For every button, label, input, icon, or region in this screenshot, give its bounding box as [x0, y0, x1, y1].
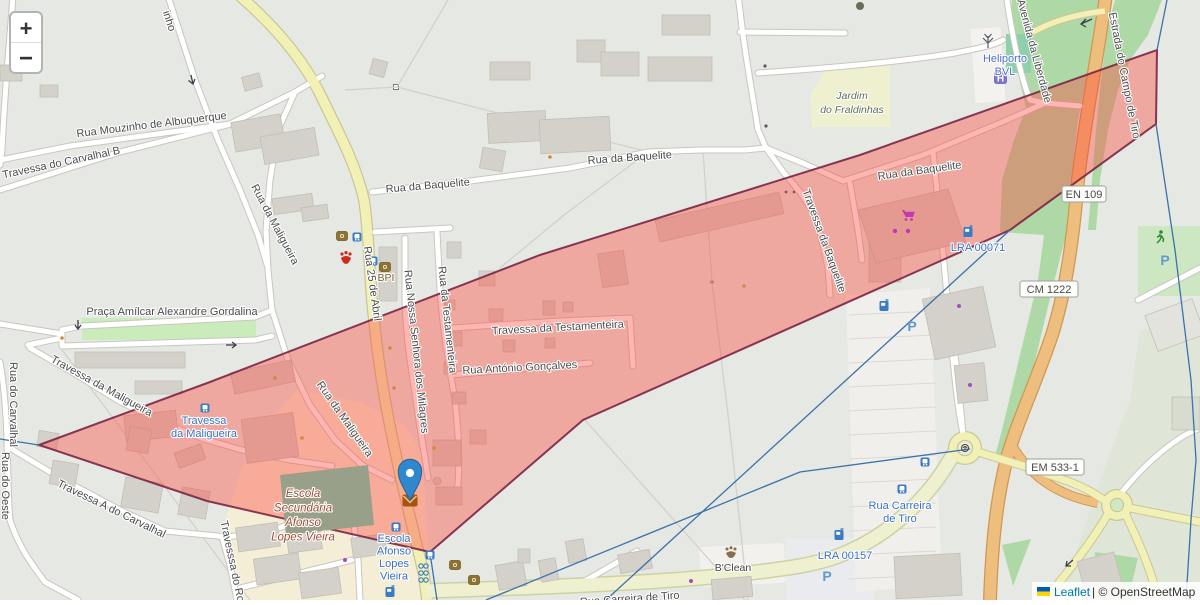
svg-text:P: P	[822, 568, 831, 584]
svg-text:do Fraldinhas: do Fraldinhas	[820, 104, 884, 116]
svg-text:Escola: Escola	[377, 533, 411, 545]
svg-text:da Maligueira: da Maligueira	[171, 428, 238, 440]
svg-text:LRA 00071: LRA 00071	[951, 242, 1005, 254]
svg-text:Leaflet: Leaflet	[1054, 585, 1091, 599]
svg-text:EN 109: EN 109	[1066, 189, 1103, 201]
svg-text:Secundária: Secundária	[274, 503, 332, 515]
svg-text:Heliporto: Heliporto	[983, 53, 1027, 65]
svg-text:Travessa: Travessa	[182, 415, 228, 427]
svg-text:Rua do Carvalhal: Rua do Carvalhal	[7, 362, 19, 447]
svg-text:P: P	[1160, 252, 1169, 268]
svg-text:+: +	[20, 16, 33, 41]
svg-text:Praça Amílcar Alexandre Gordal: Praça Amílcar Alexandre Gordalina	[86, 306, 258, 318]
svg-text:Afonso: Afonso	[284, 517, 321, 529]
svg-text:Rua do Oeste: Rua do Oeste	[0, 452, 11, 520]
svg-text:Afonso: Afonso	[377, 546, 411, 558]
svg-text:−: −	[19, 45, 33, 72]
svg-text:Lopes Vieira: Lopes Vieira	[271, 532, 335, 544]
svg-text:LRA 00157: LRA 00157	[818, 550, 872, 562]
svg-text:Vieira: Vieira	[380, 571, 409, 583]
svg-text:Jardim: Jardim	[835, 90, 868, 102]
svg-text:de Tiro: de Tiro	[883, 513, 917, 525]
svg-text:EM 533-1: EM 533-1	[1031, 462, 1079, 474]
svg-text:P: P	[907, 318, 916, 334]
svg-text:| © OpenStreetMap: | © OpenStreetMap	[1092, 585, 1196, 599]
svg-text:Rua Carreira: Rua Carreira	[869, 500, 933, 512]
svg-text:Lopes: Lopes	[379, 558, 409, 570]
svg-text:CM 1222: CM 1222	[1027, 284, 1072, 296]
svg-text:BVL: BVL	[995, 66, 1016, 78]
svg-text:BPI: BPI	[378, 272, 395, 284]
svg-text:Escola: Escola	[286, 488, 321, 500]
svg-text:B'Clean: B'Clean	[715, 562, 752, 574]
